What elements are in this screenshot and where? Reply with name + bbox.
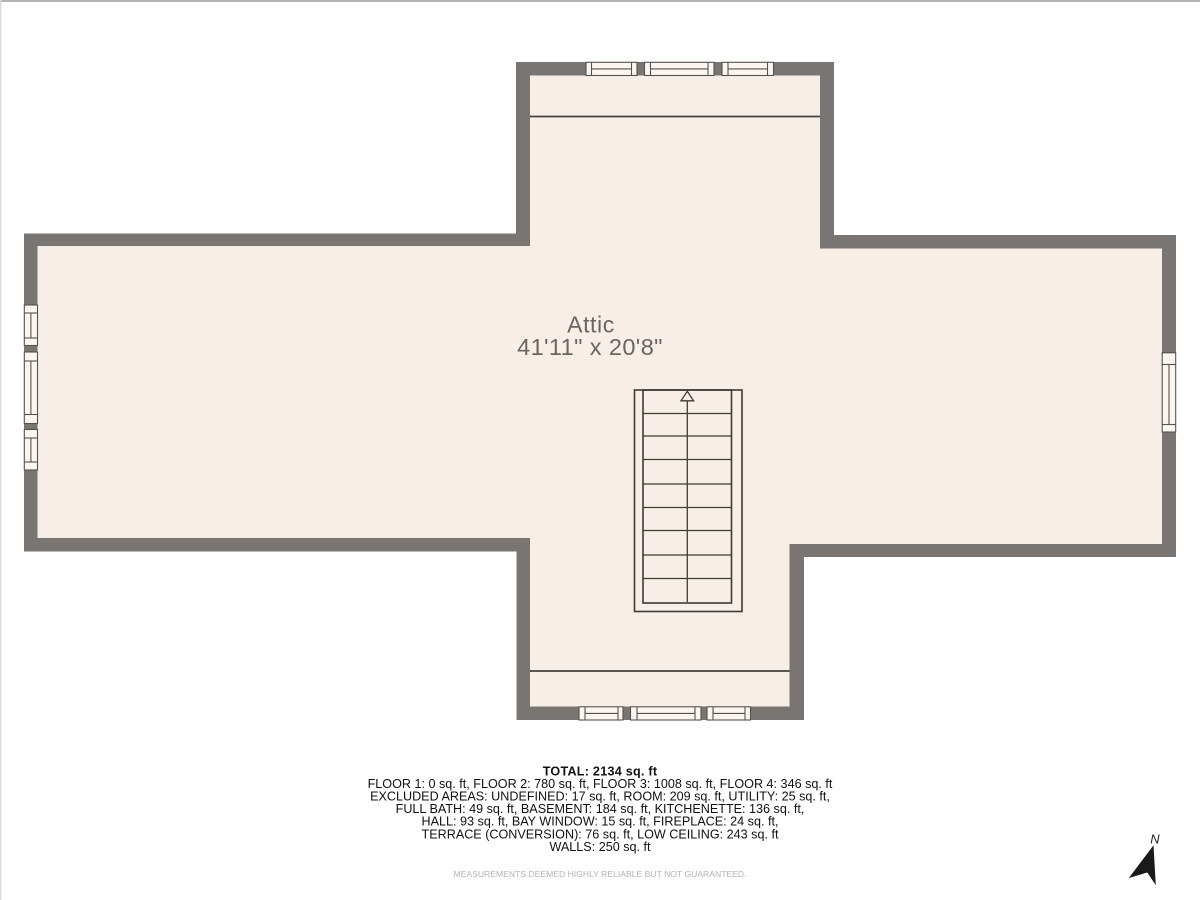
svg-text:MEASUREMENTS DEEMED HIGHLY REL: MEASUREMENTS DEEMED HIGHLY RELIABLE BUT … xyxy=(453,869,746,879)
svg-text:N: N xyxy=(1150,832,1160,847)
svg-text:WALLS: 250 sq. ft: WALLS: 250 sq. ft xyxy=(549,840,651,854)
svg-text:41'11" x 20'8": 41'11" x 20'8" xyxy=(517,334,663,360)
